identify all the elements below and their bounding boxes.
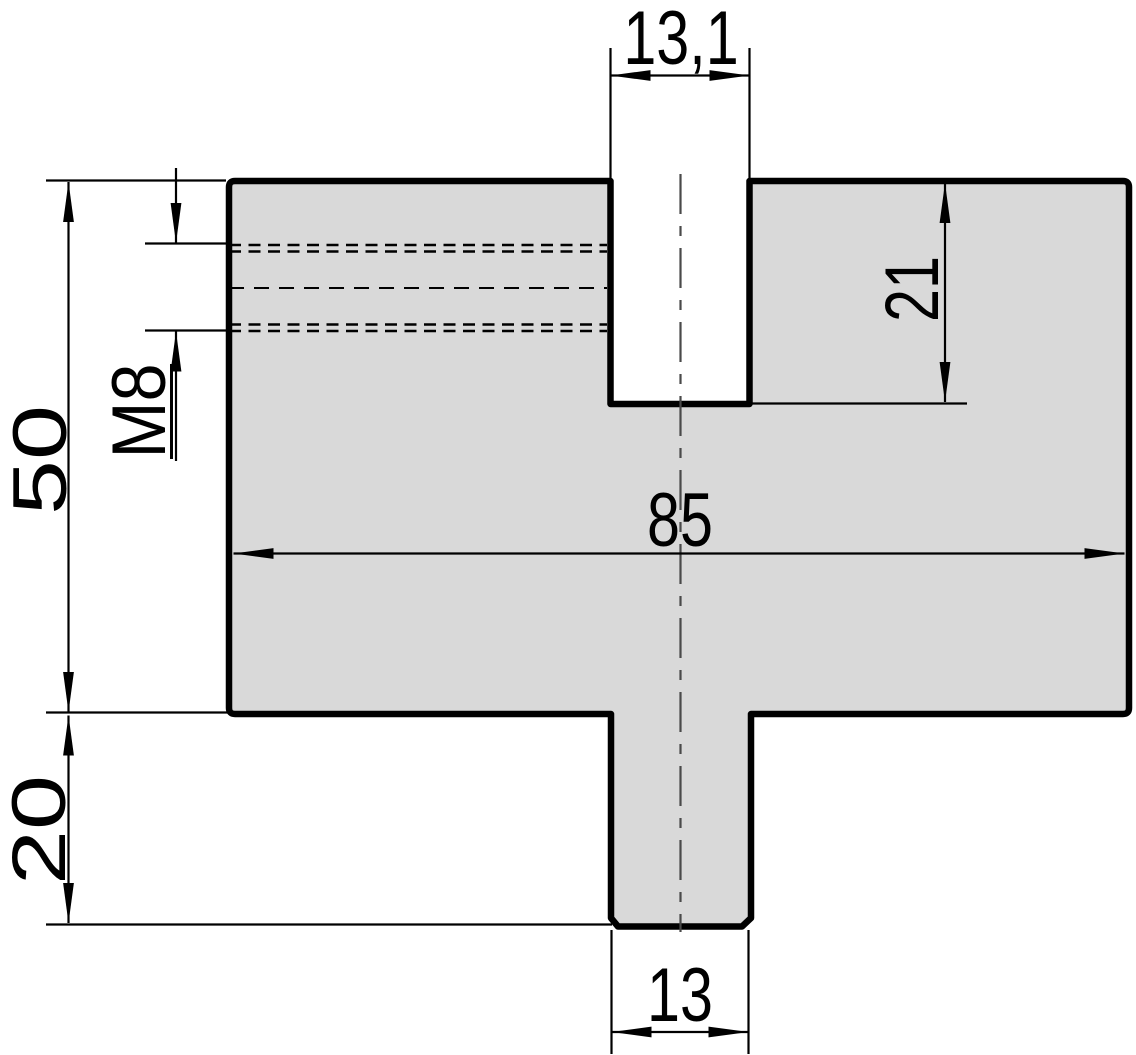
technical-drawing-canvas: 13,1 50 M8 21 85 20 13 <box>0 0 1136 1055</box>
dim-label-tang-height: 20 <box>0 775 81 885</box>
dim-label-thread: M8 <box>98 363 182 458</box>
dimension-tang-width: 13 <box>612 930 749 1054</box>
dim-label-slot-depth: 21 <box>870 256 955 322</box>
dimension-thread: M8 <box>98 168 226 461</box>
dimension-slot-width: 13,1 <box>611 0 750 179</box>
dim-label-body-width: 85 <box>647 478 713 563</box>
die-cross-section-drawing: 13,1 50 M8 21 85 20 13 <box>0 0 1136 1055</box>
dim-label-slot-width: 13,1 <box>623 0 738 81</box>
dimension-tang-height: 20 <box>0 716 612 925</box>
dim-label-tang-width: 13 <box>647 953 713 1038</box>
dim-label-body-height: 50 <box>0 405 82 515</box>
